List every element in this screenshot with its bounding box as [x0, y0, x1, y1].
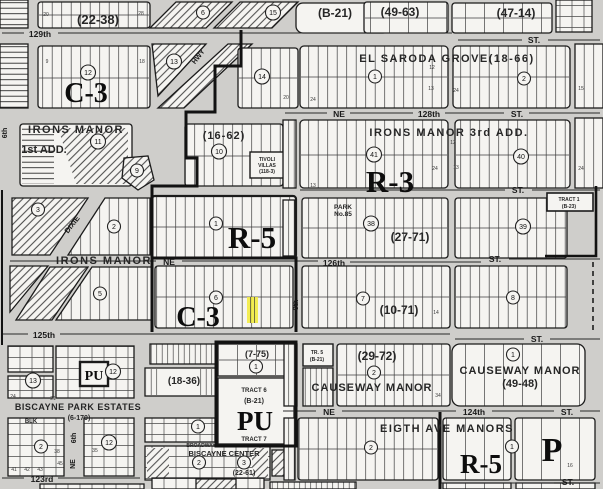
zone-c3-north: C-3: [64, 78, 108, 109]
lot-number: 15: [578, 86, 584, 92]
broadway: BROADWAY: [186, 443, 216, 449]
map-block: [196, 479, 236, 489]
block-number-13: 13: [26, 373, 41, 388]
st-125th: 125th: [33, 330, 55, 340]
st-bottom-right: ST.: [562, 477, 574, 487]
lot-number: 20: [283, 95, 289, 101]
map-block: [516, 483, 595, 489]
lot-number: 16: [567, 463, 573, 469]
block-number-11: 11: [91, 134, 106, 149]
map-label: 2: [522, 76, 526, 83]
st-ne-126: NE: [163, 257, 175, 267]
lot-number: 41: [11, 467, 17, 473]
st-128-st: ST.: [511, 109, 523, 119]
block-number-9: 9: [131, 164, 144, 177]
map-label: 1: [254, 364, 258, 371]
zone-r5-mid: R-5: [228, 220, 276, 255]
block-number-8: 8: [507, 291, 520, 304]
st-ne-128: NE: [333, 109, 345, 119]
zoning-plat-map: C-3R-3R-5C-3R-5PPUPU(22-38)(B-21)(49-63)…: [0, 0, 603, 489]
st-123rd: 123rd: [31, 474, 54, 484]
st-124-st: ST.: [561, 407, 573, 417]
zone-r5-bottom: R-5: [460, 449, 502, 479]
lot-number: 24: [578, 166, 584, 172]
tract-6: TRACT 6: [241, 388, 267, 394]
map-block: [147, 448, 169, 478]
map-label: 13: [170, 59, 178, 66]
st-8th: 8th: [293, 300, 300, 311]
block-number-12: 12: [81, 65, 96, 80]
map-label: 1: [196, 424, 200, 431]
map-label: 3: [36, 207, 40, 214]
block-number-1: 1: [506, 440, 519, 453]
block-number-39: 39: [516, 219, 531, 234]
map-block: [0, 44, 28, 108]
lot-number: 24: [432, 166, 438, 172]
plat-47-14: (47-14): [497, 6, 536, 20]
block-number-2: 2: [365, 441, 378, 454]
block-number-6: 6: [210, 291, 223, 304]
block-number-3: 3: [32, 203, 45, 216]
map-label: 7: [361, 296, 365, 303]
st-124th: 124th: [463, 407, 485, 417]
st-top-right: ST.: [528, 35, 540, 45]
map-label: 15: [269, 10, 277, 17]
plat-10-71: (10-71): [380, 303, 419, 317]
map-block: [284, 418, 295, 480]
block-number-15: 15: [266, 5, 281, 20]
map-block: [270, 482, 356, 489]
map-block: [283, 200, 295, 256]
zone-c3-south: C-3: [176, 302, 220, 333]
lot-number: 13: [453, 165, 459, 171]
tivoli-villas-3: (118-3): [259, 169, 275, 175]
irons-manor-3rd-add: IRONS MANOR 3rd ADD.: [369, 127, 528, 139]
biscayne-park-estates: BISCAYNE PARK ESTATES: [15, 402, 141, 412]
st-126th: 126th: [323, 258, 345, 268]
map-block: [198, 369, 216, 395]
lot-number: 45: [57, 461, 63, 467]
plat-49-48: (49-48): [502, 378, 538, 390]
lot-number: 9: [46, 59, 49, 65]
plat-b-21: (B-21): [318, 6, 352, 20]
blk-label: BLK: [25, 419, 38, 425]
map-block: [145, 418, 215, 442]
st-ne-bottom: NE: [70, 459, 77, 469]
lot-number: 20: [43, 12, 49, 18]
map-label: 14: [258, 74, 266, 81]
st-6th-left: 6th: [2, 128, 9, 139]
st-129th: 129th: [29, 29, 51, 39]
map-block: [556, 0, 592, 32]
map-label: 2: [39, 444, 43, 451]
map-block: [146, 369, 160, 395]
block-number-3: 3: [238, 456, 251, 469]
block-number-41: 41: [367, 147, 382, 162]
map-label: 12: [84, 70, 92, 77]
map-label: 11: [94, 139, 101, 146]
map-label: 1: [510, 444, 514, 451]
block-number-2: 2: [368, 366, 381, 379]
block-number-7: 7: [357, 292, 370, 305]
causeway-manor-south: CAUSEWAY MANOR: [312, 382, 433, 394]
irons-manor-1st-add: 1st ADD.: [21, 144, 66, 156]
map-block: [283, 120, 296, 188]
tract-1-plat: (B-23): [562, 204, 577, 210]
block-number-6: 6: [197, 6, 210, 19]
map-label: 3: [242, 460, 246, 467]
lot-number: 28: [138, 11, 144, 17]
map-label: 12: [105, 440, 113, 447]
block-number-12: 12: [102, 435, 117, 450]
map-label: 2: [112, 224, 116, 231]
block-number-1: 1: [192, 420, 205, 433]
lot-number: 24: [10, 394, 16, 400]
map-shape: [2, 334, 600, 339]
lot-number: 43: [37, 467, 43, 473]
block-number-2: 2: [108, 220, 121, 233]
st-128th: 128th: [418, 109, 440, 119]
map-label: 2: [372, 370, 376, 377]
block-number-1: 1: [210, 217, 223, 230]
lot-number: 12: [450, 140, 456, 146]
map-block: [575, 118, 603, 188]
lot-number: 14: [433, 310, 439, 316]
plat-27-71: (27-71): [391, 230, 430, 244]
zone-p: P: [542, 432, 563, 469]
park-number: No.85: [334, 211, 352, 218]
map-canvas: C-3R-3R-5C-3R-5PPUPU(22-38)(B-21)(49-63)…: [0, 0, 603, 489]
map-shape: [2, 33, 600, 40]
map-label: 1: [373, 74, 377, 81]
map-block: [0, 0, 28, 28]
map-block: [150, 344, 216, 364]
tract-1: TRACT 1: [558, 197, 579, 203]
lot-number: 35: [92, 448, 98, 454]
block-number-12: 12: [106, 364, 121, 379]
map-label: 12: [109, 369, 117, 376]
highlighted-parcel[interactable]: [247, 297, 258, 323]
block-number-13: 13: [167, 54, 182, 69]
plat-7-75: (7-75): [245, 349, 269, 359]
map-label: 6: [214, 295, 218, 302]
plat-6-170: (6-170): [68, 415, 91, 422]
lot-number: 38: [54, 449, 60, 455]
block-number-14: 14: [255, 69, 270, 84]
lot-number: 13: [310, 183, 316, 189]
zone-r3: R-3: [366, 164, 414, 199]
map-label: 13: [29, 378, 37, 385]
block-number-40: 40: [514, 149, 529, 164]
tract-6-plat: (B-21): [244, 398, 264, 405]
map-label: 8: [511, 295, 515, 302]
plat-16-62: (16-62): [203, 130, 245, 142]
map-label: 2: [197, 460, 201, 467]
plat-18-36: (18-36): [168, 376, 200, 387]
eigth-ave-manors: EIGTH AVE MANORS: [380, 423, 514, 435]
map-label: 2: [369, 445, 373, 452]
st-mid-right: ST.: [512, 185, 524, 195]
map-label: 39: [519, 224, 527, 231]
map-label: 6: [201, 10, 205, 17]
plat-29-72: (29-72): [358, 349, 397, 363]
lot-number: 18: [139, 59, 145, 65]
map-label: 38: [367, 221, 375, 228]
st-125-st: ST.: [531, 334, 543, 344]
block-number-5: 5: [94, 287, 107, 300]
map-label: 40: [517, 154, 525, 161]
causeway-manor: CAUSEWAY MANOR: [460, 365, 581, 377]
block-number-1: 1: [507, 348, 520, 361]
block-number-1: 1: [369, 70, 382, 83]
map-label: 1: [511, 352, 515, 359]
tr-5: TR. 5: [311, 350, 323, 356]
block-number-2: 2: [193, 456, 206, 469]
irons-manor: IRONS MANOR: [28, 124, 124, 136]
map-block: [443, 483, 511, 489]
lot-number: 24: [310, 97, 316, 103]
irons-manor-south: IRONS MANOR: [56, 255, 152, 267]
st-126-st: ST.: [489, 254, 501, 264]
zone-pu-large: PU: [237, 406, 273, 436]
plat-22-61: (22-61): [233, 470, 256, 477]
park-name: PARK: [334, 204, 352, 211]
block-number-10: 10: [212, 144, 227, 159]
map-label: 9: [135, 168, 139, 175]
tr-5-plat: (B-21): [310, 357, 325, 363]
lot-number: 24: [453, 88, 459, 94]
map-block: [575, 44, 603, 108]
lot-number: 34: [435, 393, 441, 399]
plat-49-63: (49-63): [381, 5, 420, 19]
block-number-1: 1: [250, 360, 263, 373]
block-number-2: 2: [518, 72, 531, 85]
map-label: 10: [215, 149, 223, 156]
block-number-2: 2: [35, 440, 48, 453]
st-6th-bottom: 6th: [71, 433, 78, 444]
block-number-38: 38: [364, 216, 379, 231]
map-label: 41: [370, 152, 378, 159]
tract-7: TRACT 7: [241, 437, 267, 443]
plat-22-38: (22-38): [77, 12, 119, 27]
map-block: [40, 484, 144, 489]
lot-number: 21: [50, 396, 56, 402]
map-label: 5: [98, 291, 102, 298]
lot-number: 42: [24, 467, 30, 473]
lot-number: 13: [428, 86, 434, 92]
el-saroda-grove: EL SARODA GROVE(18-66): [359, 53, 534, 65]
st-ne-124: NE: [323, 407, 335, 417]
map-label: 1: [214, 221, 218, 228]
zone-pu-small: PU: [85, 369, 104, 384]
map-block: [8, 346, 53, 372]
lot-number: 12: [429, 65, 435, 71]
